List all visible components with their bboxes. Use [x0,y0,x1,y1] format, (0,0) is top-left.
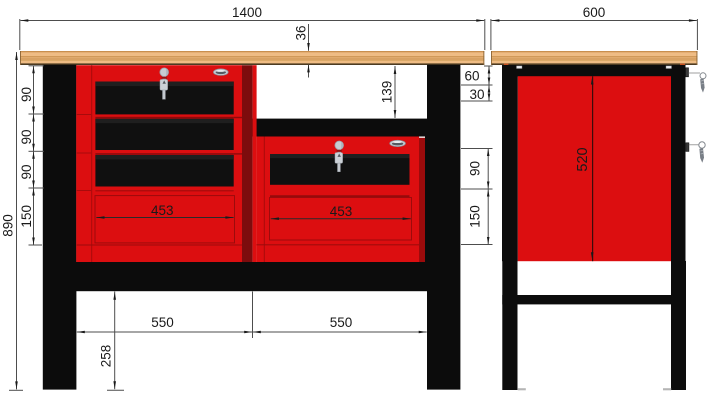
svg-text:90: 90 [19,129,34,144]
svg-text:520: 520 [575,147,591,171]
svg-text:453: 453 [330,204,353,219]
svg-text:550: 550 [151,315,174,330]
svg-text:150: 150 [19,205,34,228]
svg-text:1400: 1400 [232,5,262,20]
svg-text:90: 90 [19,164,34,179]
svg-text:60: 60 [464,69,479,84]
svg-text:453: 453 [151,203,174,218]
svg-text:550: 550 [330,315,353,330]
svg-text:139: 139 [380,81,395,104]
svg-text:30: 30 [469,87,484,102]
svg-text:36: 36 [294,25,309,40]
svg-text:90: 90 [468,161,483,176]
svg-text:890: 890 [1,214,16,237]
svg-text:90: 90 [19,87,34,102]
svg-text:150: 150 [468,205,483,228]
svg-text:258: 258 [99,345,114,368]
svg-text:600: 600 [583,5,606,20]
